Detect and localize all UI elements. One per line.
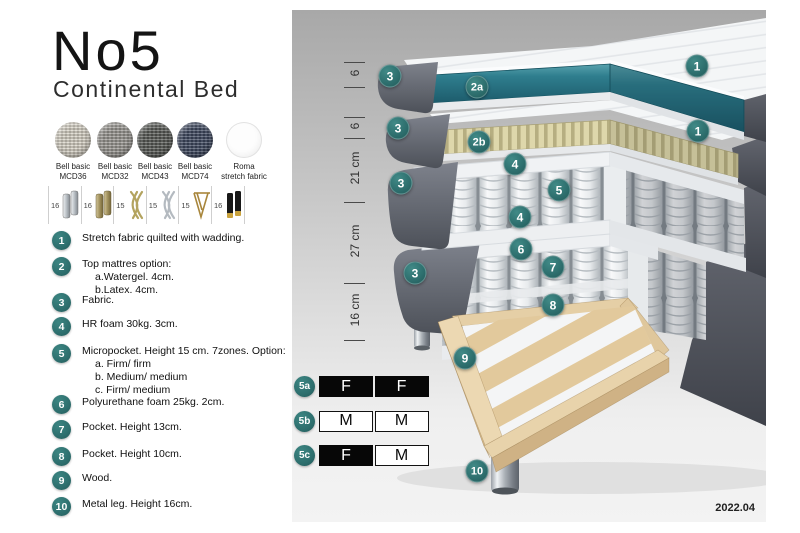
legend-number-badge: 4: [52, 317, 71, 336]
callout-badge-6: 6: [510, 238, 533, 261]
legend-text: Wood.: [82, 472, 312, 485]
firmness-cell: M: [375, 411, 429, 432]
callout-badge-2a: 2a: [466, 76, 489, 99]
firmness-table: 5a FF5b MM5c FM: [294, 376, 429, 480]
version-label: 2022.04: [715, 502, 755, 514]
legend-item: 4 HR foam 30kg. 3cm.: [52, 318, 312, 331]
legend-number-badge: 8: [52, 447, 71, 466]
legend-number-badge: 9: [52, 471, 71, 490]
ruler-tick: [344, 202, 365, 203]
legend-item: 9 Wood.: [52, 472, 312, 485]
firmness-row: 5a FF: [294, 376, 429, 397]
legend-text: Stretch fabric quilted with wadding.: [82, 232, 312, 245]
legend-number-badge: 2: [52, 257, 71, 276]
legend-item: 7 Pocket. Height 13cm.: [52, 421, 312, 434]
callout-badge-3: 3: [390, 172, 413, 195]
ruler-dimension-label: 16 cm: [348, 285, 362, 335]
legend-text: Pocket. Height 10cm.: [82, 448, 312, 461]
firmness-cell: F: [375, 376, 429, 397]
ruler-dimension-label: 21 cm: [348, 143, 362, 193]
firmness-cell: F: [319, 376, 373, 397]
ruler-tick: [344, 340, 365, 341]
firmness-row-badge: 5b: [294, 411, 315, 432]
legend-number-badge: 1: [52, 231, 71, 250]
legend-item: 3 Fabric.: [52, 294, 312, 307]
legend-number-badge: 5: [52, 344, 71, 363]
firmness-bar: MM: [319, 411, 429, 432]
legend-number-badge: 6: [52, 395, 71, 414]
ruler-dimension-label: 27 cm: [348, 216, 362, 266]
legend-text: HR foam 30kg. 3cm.: [82, 318, 312, 331]
legend-text: Pocket. Height 13cm.: [82, 421, 312, 434]
callout-badge-8: 8: [542, 294, 565, 317]
floor-shadow: [397, 462, 766, 494]
legend-number-badge: 10: [52, 497, 71, 516]
firmness-row: 5c FM: [294, 445, 429, 466]
ruler-dimension-label: 6: [348, 48, 362, 98]
legend-subitem: a.Watergel. 4cm.: [95, 271, 312, 284]
firmness-row: 5b MM: [294, 411, 429, 432]
legend-item: 6 Polyurethane foam 25kg. 2cm.: [52, 396, 312, 409]
firmness-bar: FF: [319, 376, 429, 397]
legend-number-badge: 3: [52, 293, 71, 312]
callout-badge-2b: 2b: [468, 131, 491, 154]
legend-subitem: b. Medium/ medium: [95, 371, 312, 384]
callout-badge-5: 5: [548, 179, 571, 202]
callout-badge-4: 4: [504, 153, 527, 176]
firmness-bar: FM: [319, 445, 429, 466]
legend-item: 8 Pocket. Height 10cm.: [52, 448, 312, 461]
callout-badge-1: 1: [687, 120, 710, 143]
callout-badge-4: 4: [509, 206, 532, 229]
callout-badge-10: 10: [466, 460, 489, 483]
firmness-cell: M: [319, 411, 373, 432]
firmness-cell: F: [319, 445, 373, 466]
legend-item: 1 Stretch fabric quilted with wadding.: [52, 232, 312, 245]
legend-text: Micropocket. Height 15 cm. 7zones. Optio…: [82, 345, 312, 358]
spec-sheet-left-column: No5 Continental Bed Bell basicMCD36 Bell…: [0, 0, 292, 533]
legend-text: Polyurethane foam 25kg. 2cm.: [82, 396, 312, 409]
firmness-cell: M: [375, 445, 429, 466]
legend-text: Metal leg. Height 16cm.: [82, 498, 312, 511]
callout-badge-3: 3: [404, 262, 427, 285]
legend-text: Fabric.: [82, 294, 312, 307]
legend-item: 2 Top mattres option:a.Watergel. 4cm.b.L…: [52, 258, 312, 297]
callout-badge-3: 3: [387, 117, 410, 140]
legend-list: 1 Stretch fabric quilted with wadding.2 …: [0, 0, 292, 533]
legend-text: Top mattres option:: [82, 258, 312, 271]
legend-subitem: a. Firm/ firm: [95, 358, 312, 371]
firmness-row-badge: 5c: [294, 445, 315, 466]
callout-badge-3: 3: [379, 65, 402, 88]
legend-item: 5 Micropocket. Height 15 cm. 7zones. Opt…: [52, 345, 312, 397]
callout-badge-9: 9: [454, 347, 477, 370]
callout-badge-7: 7: [542, 256, 565, 279]
legend-number-badge: 7: [52, 420, 71, 439]
ruler-tick: [344, 283, 365, 284]
legend-item: 10 Metal leg. Height 16cm.: [52, 498, 312, 511]
firmness-row-badge: 5a: [294, 376, 315, 397]
bed-diagram-panel: 6621 cm27 cm16 cm 112a2b3333454678910 5a…: [292, 10, 766, 522]
callout-badge-1: 1: [686, 55, 709, 78]
